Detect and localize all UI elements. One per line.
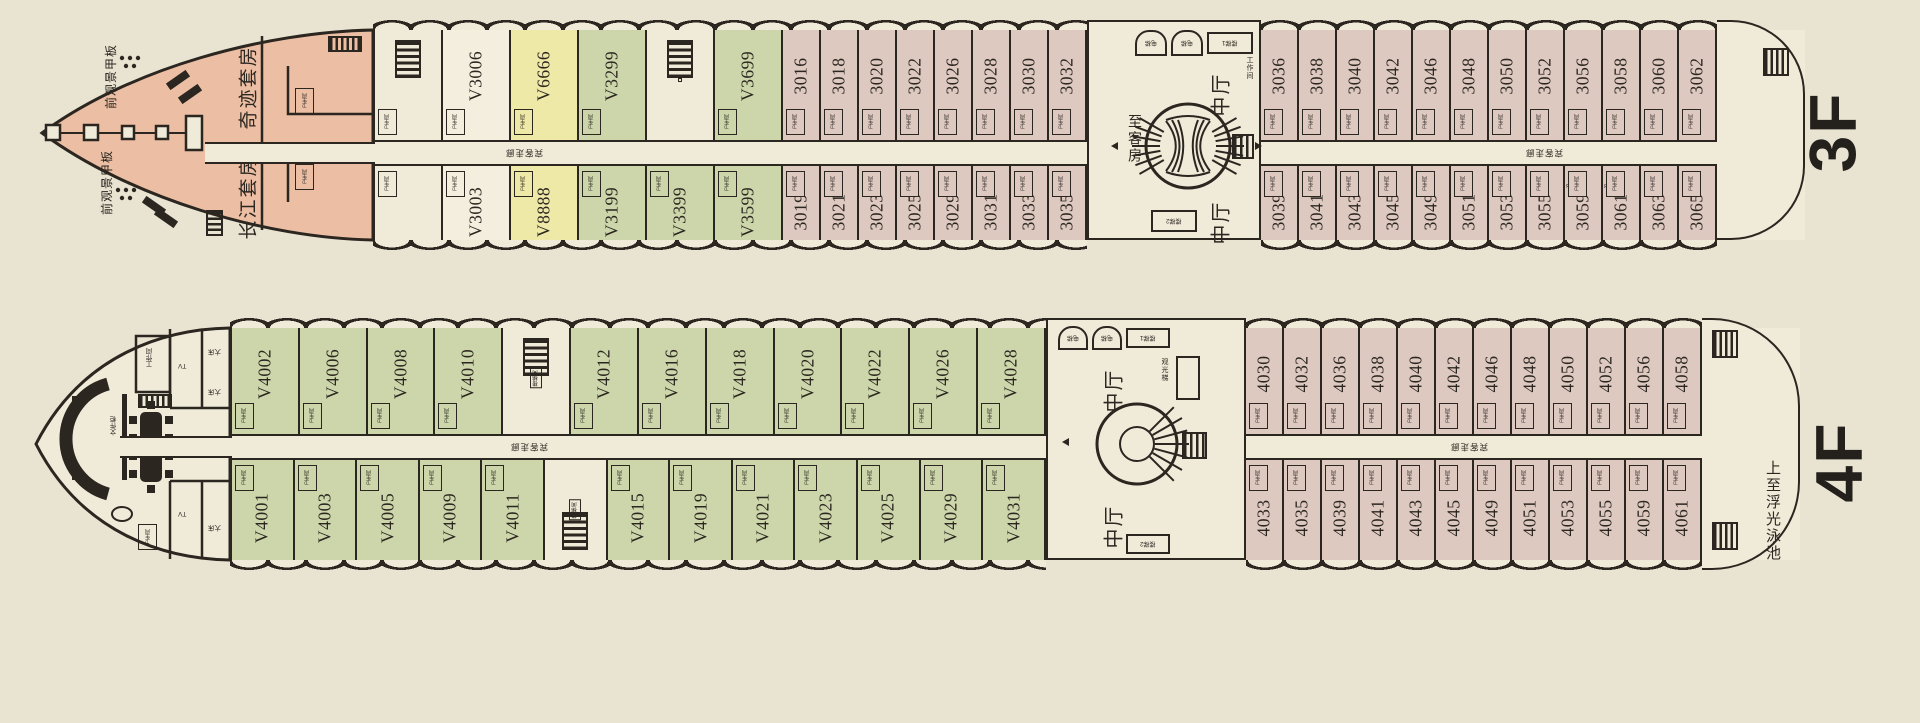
cabin-cell: V4022 卫生间 <box>842 328 910 434</box>
elevator: 电梯 <box>1092 326 1122 350</box>
cabin-number: V4001 <box>252 493 273 543</box>
cabin-cell: V8888 卫生间 <box>511 166 579 240</box>
cabin-cell: V6666 卫生间 <box>511 30 579 140</box>
cabin-cell: 3022 卫生间 <box>897 30 935 140</box>
corridor-label: 宾客走廊 <box>1525 147 1563 159</box>
bathroom-label: 卫生间 <box>303 403 322 429</box>
bathroom-label: 卫生间 <box>582 109 601 135</box>
cabin-number: 3030 <box>1019 58 1040 95</box>
bathroom-label: 卫生间 <box>574 403 593 429</box>
cabin-cell: 4033 卫生间 <box>1246 460 1284 560</box>
cabin-cell: 3063 卫生间 <box>1641 166 1679 240</box>
bathroom-label: 卫生间 <box>1302 109 1321 135</box>
bathroom-label: 卫生间 <box>1606 109 1625 135</box>
cabin-number: 4039 <box>1330 500 1351 537</box>
bathroom-label: 卫生间 <box>1014 171 1033 197</box>
corridor-label: 宾客走廊 <box>1450 441 1488 453</box>
bathroom-label: 卫生间 <box>986 465 1005 491</box>
bathroom-label: 卫生间 <box>1682 109 1701 135</box>
cabin-number: 3046 <box>1421 58 1442 95</box>
cabin-number: V4010 <box>458 349 479 399</box>
stairway-2-label: 楼梯2 <box>1140 540 1155 549</box>
cabin-number: 3061 <box>1611 194 1632 231</box>
cabin-cell: V4031 卫生间 <box>983 460 1046 560</box>
deck-3f-plan: 前观景甲板 前观景甲板 奇迹套房 长江套房 卫生间 卫生间 卫生间 V3006 … <box>30 6 1910 258</box>
cabin-cell: 3032 卫生间 <box>1049 30 1087 140</box>
cabin-number: 3048 <box>1459 58 1480 95</box>
stairs-icon <box>138 394 172 408</box>
cabin-cell: V4029 卫生间 <box>921 460 984 560</box>
cabin-number: 4040 <box>1406 356 1427 393</box>
cabin-cell: V4010 卫生间 <box>435 328 503 434</box>
bathroom-label: 卫生间 <box>862 109 881 135</box>
cabin-cell: 3045 卫生间 <box>1375 166 1413 240</box>
pool-access-label: 上至浮光泳池 <box>1762 460 1783 562</box>
cabin-number: 3026 <box>943 58 964 95</box>
cabin-number: V4022 <box>865 349 886 399</box>
cabin-number: 3040 <box>1345 58 1366 95</box>
cabin-number: 3021 <box>829 194 850 231</box>
stairway-2-label: 楼梯2 <box>1166 217 1181 226</box>
bathroom-label: 卫生间 <box>1492 171 1511 197</box>
cabin-cell: V4015 卫生间 <box>608 460 671 560</box>
cabin-number: 3045 <box>1383 194 1404 231</box>
cabin-cell: 4041 卫生间 <box>1360 460 1398 560</box>
lobby-label-bottom: 中厅 <box>1098 505 1127 549</box>
elevator: 电梯 <box>1171 30 1203 56</box>
bathroom-label: 卫生间 <box>582 171 601 197</box>
bathroom-label: 卫生间 <box>736 465 755 491</box>
cabin-cell: V4006 卫生间 <box>300 328 368 434</box>
corridor-arrow-icon <box>1111 142 1118 150</box>
cabin-number: 3063 <box>1649 194 1670 231</box>
balcony-edge <box>1261 20 1717 30</box>
stairway-2: 楼梯2 <box>1126 534 1170 554</box>
cabin-cell: 4051 卫生间 <box>1512 460 1550 560</box>
cabin-cell: 3039 卫生间 <box>1261 166 1299 240</box>
bathroom-label: 卫生间 <box>1568 171 1587 197</box>
bathroom-label: 卫生间 <box>938 171 957 197</box>
cabin-number: 4033 <box>1254 500 1275 537</box>
cabin-number: 3018 <box>829 58 850 95</box>
workroom-label: 工作间 <box>1245 56 1255 80</box>
cabin-number: V3299 <box>602 51 623 101</box>
cabin-cell: 卫生间 <box>647 30 715 140</box>
bathroom-label: 卫生间 <box>938 109 957 135</box>
bathroom-label: 卫生间 <box>1340 171 1359 197</box>
cabin-cell: 3050 卫生间 <box>1489 30 1527 140</box>
cabin-cell: 3035 卫生间 <box>1049 166 1087 240</box>
bathroom-label: 卫生间 <box>976 171 995 197</box>
cabin-number: 3060 <box>1649 58 1670 95</box>
cabin-cell: 4058 卫生间 <box>1664 328 1702 434</box>
cabin-cell: V4005 卫生间 <box>357 460 420 560</box>
deck3-bottom-right-cabins: 3039 卫生间 3041 卫生间 3043 卫生间 3045 卫生间 <box>1261 164 1717 240</box>
cabin-number: 3035 <box>1057 194 1078 231</box>
cabin-number: 3062 <box>1687 58 1708 95</box>
bathroom-label: 卫生间 <box>1454 171 1473 197</box>
bathroom-label: 卫生间 <box>642 403 661 429</box>
bathroom-label: 卫生间 <box>423 465 442 491</box>
cabin-cell: 3028 卫生间 <box>973 30 1011 140</box>
cabin-small-label: 楼梯间 <box>530 368 542 389</box>
cabin-cell: 3062 卫生间 <box>1679 30 1717 140</box>
cabin-number: V4021 <box>753 493 774 543</box>
elevator-label: 电梯 <box>1181 39 1193 48</box>
bathroom-label: 卫生间 <box>1378 109 1397 135</box>
corridor-label: 宾客走廊 <box>510 441 548 453</box>
bathroom-label: 卫生间 <box>824 109 843 135</box>
cabin-cell: 3026 卫生间 <box>935 30 973 140</box>
cabin-number: 3059 <box>1573 194 1594 231</box>
cabin-number: 4043 <box>1406 500 1427 537</box>
bathroom-label: 卫生间 <box>1378 171 1397 197</box>
bathroom-label: 卫生间 <box>1477 465 1496 491</box>
miracle-suite-label: 奇迹套房 <box>234 45 261 129</box>
bathroom-label: 卫生间 <box>378 171 397 197</box>
cabin-number: 4048 <box>1520 356 1541 393</box>
bathroom-label: 卫生间 <box>438 403 457 429</box>
stairs-icon <box>206 210 223 236</box>
bathroom-label: 卫生间 <box>514 171 533 197</box>
bathroom-label: 卫生间 <box>862 171 881 197</box>
bathroom-label: 卫生间 <box>1052 171 1071 197</box>
cabin-cell: 4040 卫生间 <box>1398 328 1436 434</box>
cabin-cell: 4053 卫生间 <box>1550 460 1588 560</box>
cabin-number: 4035 <box>1292 500 1313 537</box>
balcony-edge <box>1246 560 1702 570</box>
stairway-1-label: 楼梯1 <box>1222 39 1237 48</box>
bathroom-label: 卫生间 <box>1302 171 1321 197</box>
deck3-top-right-cabins: 3036 卫生间 3038 卫生间 3040 卫生间 3042 卫生间 3046… <box>1261 30 1717 142</box>
cabin-cell: 3058 卫生间 <box>1603 30 1641 140</box>
stair-steps-icon <box>1182 432 1207 459</box>
to-cabins-label: 至客房 <box>1123 114 1143 165</box>
lobby-label-top: 中厅 <box>1205 73 1234 117</box>
cabin-cell: 4050 卫生间 <box>1550 328 1588 434</box>
big-bed-label: 大床 <box>208 348 221 358</box>
sightseeing-elevator <box>1176 356 1200 400</box>
cabin-cell: 3052 卫生间 <box>1527 30 1565 140</box>
cabin-number: V3003 <box>466 187 487 237</box>
cabin-number: 3058 <box>1611 58 1632 95</box>
bathroom-label: 卫生间 <box>1629 403 1648 429</box>
cabin-cell: 3043 卫生间 <box>1337 166 1375 240</box>
bathroom-label: 卫生间 <box>1530 109 1549 135</box>
deck-4f-plan: TV 大床 大床 工作间 文件柜 TV 大床 卫生间 V4002 卫生间 V40… <box>20 296 1910 586</box>
bathroom-label: 卫生间 <box>1264 171 1283 197</box>
bathroom-label: 卫生间 <box>1629 465 1648 491</box>
deck3-bow-corridor <box>205 142 375 164</box>
cabin-cell: 3025 卫生间 <box>897 166 935 240</box>
bathroom-label: 卫生间 <box>798 465 817 491</box>
bathroom-label: 卫生间 <box>1644 171 1663 197</box>
cabin-cell: 3023 卫生间 <box>859 166 897 240</box>
bathroom-label: 卫生间 <box>295 164 314 190</box>
elevator-label: 电梯 <box>1101 334 1113 343</box>
cabin-cell: 3029 卫生间 <box>935 166 973 240</box>
cabin-number: V4031 <box>1003 493 1024 543</box>
cabin-number: V4018 <box>729 349 750 399</box>
cabin-cell: 3061 348 卫生间 <box>1603 166 1641 240</box>
bathroom-label: 卫生间 <box>138 524 157 550</box>
cabin-cell: 4043 卫生间 <box>1398 460 1436 560</box>
cabin-number: 4056 <box>1634 356 1655 393</box>
cabin-cell: V4016 卫生间 <box>639 328 707 434</box>
cabin-number: 3022 <box>905 58 926 95</box>
bathroom-label: 卫生间 <box>924 465 943 491</box>
cabin-number: 4045 <box>1444 500 1465 537</box>
cabin-number: 3028 <box>981 58 1002 95</box>
cabin-cell: 4045 卫生间 <box>1436 460 1474 560</box>
cabin-cell: 3030 卫生间 <box>1011 30 1049 140</box>
bathroom-label: 卫生间 <box>1287 403 1306 429</box>
balcony-edge <box>373 20 1087 30</box>
cabin-number: 4042 <box>1444 356 1465 393</box>
bathroom-label: 卫生间 <box>1568 109 1587 135</box>
cabin-cell: V4019 卫生间 <box>670 460 733 560</box>
bathroom-label: 卫生间 <box>1287 465 1306 491</box>
bathroom-label: 卫生间 <box>1515 403 1534 429</box>
cabin-cell: V4018 卫生间 <box>707 328 775 434</box>
bathroom-label: 卫生间 <box>786 171 805 197</box>
cabin-number: V6666 <box>534 51 555 101</box>
deck4-floor-label: 4F <box>1801 421 1877 502</box>
cabin-number: V3199 <box>602 187 623 237</box>
cabin-cell: 3031 卫生间 <box>973 166 1011 240</box>
balcony-edge <box>230 318 1046 328</box>
cabin-number: V4020 <box>797 349 818 399</box>
cabin-number: V4028 <box>1001 349 1022 399</box>
sightseeing-elevator-label: 观光梯 <box>1160 358 1170 382</box>
bathroom-label: 卫生间 <box>1401 403 1420 429</box>
bathroom-label: 卫生间 <box>1530 171 1549 197</box>
deck3-atrium: 电梯 电梯 楼梯1 楼梯2 至客房 工作间 中厅 中厅 <box>1087 20 1261 240</box>
bathroom-label: 卫生间 <box>1264 109 1283 135</box>
bathroom-label: 卫生间 <box>1515 465 1534 491</box>
deck4-atrium: 电梯 电梯 楼梯1 观光梯 中厅 中厅 楼梯2 <box>1046 318 1246 560</box>
cabin-cell: 4042 卫生间 <box>1436 328 1474 434</box>
stairway-1: 楼梯1 <box>1207 32 1253 54</box>
deck3-bottom-left-cabins: 3019 卫生间 3021 卫生间 3023 卫生间 3025 卫生间 3029… <box>783 164 1087 240</box>
bathroom-label: 卫生间 <box>1363 465 1382 491</box>
deck4-bottom-right-cabins: 4033 卫生间 4035 卫生间 4039 卫生间 4041 卫生间 4043… <box>1246 458 1702 560</box>
cabin-number: V4026 <box>933 349 954 399</box>
cabin-cell: 4052 卫生间 <box>1588 328 1626 434</box>
balcony-edge <box>1261 240 1717 250</box>
cabin-cell: 4036 卫生间 <box>1322 328 1360 434</box>
bathroom-label: 卫生间 <box>1249 403 1268 429</box>
stairway-2: 楼梯2 <box>1151 210 1197 232</box>
cabin-number: 3055 <box>1535 194 1556 231</box>
balcony-edge <box>1246 318 1702 328</box>
cabin-cell: V4001 卫生间 <box>232 460 295 560</box>
cabin-cell: V4011 卫生间 <box>482 460 545 560</box>
elevator: 电梯 <box>1135 30 1167 56</box>
bathroom-label: 卫生间 <box>1454 109 1473 135</box>
bathroom-label: 卫生间 <box>981 403 1000 429</box>
bathroom-label: 卫生间 <box>371 403 390 429</box>
cabin-cell: 4032 卫生间 <box>1284 328 1322 434</box>
bathroom-label: 卫生间 <box>235 403 254 429</box>
deck4-bow-corridor <box>120 436 232 458</box>
stairs-icon <box>1712 330 1738 358</box>
cruise-deck-plan: { "labels": { "wc": "卫生间", "corridor": "… <box>0 0 1920 723</box>
deck4-bottom-suites-row: V4001 卫生间 V4003 卫生间 V4005 卫生间 V4009 卫生间 <box>230 458 1046 560</box>
cabin-number: 3016 <box>791 58 812 95</box>
cabin-number: V4019 <box>690 493 711 543</box>
bathroom-label: 卫生间 <box>1606 171 1625 197</box>
cabin-number: 3051 <box>1459 194 1480 231</box>
bathroom-label: 卫生间 <box>913 403 932 429</box>
cabin-cell: 卫生间 <box>375 30 443 140</box>
bathroom-label: 卫生间 <box>1682 171 1701 197</box>
cabin-cell: V4021 卫生间 <box>733 460 796 560</box>
bathroom-label: 卫生间 <box>235 465 254 491</box>
stairs-icon <box>1712 522 1738 550</box>
cabin-cell: 4056 卫生间 <box>1626 328 1664 434</box>
cabin-cell: 3046 卫生间 <box>1413 30 1451 140</box>
cabin-cell: 3038 卫生间 <box>1299 30 1337 140</box>
cabin-number: 4055 <box>1596 500 1617 537</box>
cabin-number: 4050 <box>1558 356 1579 393</box>
elevator-label: 电梯 <box>1145 39 1157 48</box>
bathroom-label: 卫生间 <box>710 403 729 429</box>
bathroom-label: 卫生间 <box>718 109 737 135</box>
cabin-number: 3053 <box>1497 194 1518 231</box>
cabin-cell: V4003 卫生间 <box>295 460 358 560</box>
bathroom-label: 卫生间 <box>1644 109 1663 135</box>
cabin-number: 3019 <box>791 194 812 231</box>
cabin-cell: V4020 卫生间 <box>775 328 843 434</box>
cabin-small-label <box>678 78 682 82</box>
stairway-1-label: 楼梯1 <box>1140 334 1155 343</box>
cabin-number: 4032 <box>1292 356 1313 393</box>
bathroom-label: 卫生间 <box>1249 465 1268 491</box>
cabin-cell: 3060 卫生间 <box>1641 30 1679 140</box>
bathroom-label: 卫生间 <box>446 109 465 135</box>
bathroom-label: 卫生间 <box>1052 109 1071 135</box>
cabin-cell: 3019 卫生间 <box>783 166 821 240</box>
cabin-number: 3032 <box>1057 58 1078 95</box>
bathroom-label: 卫生间 <box>1416 171 1435 197</box>
bathroom-label: 卫生间 <box>900 109 919 135</box>
cabin-number: 3052 <box>1535 58 1556 95</box>
cabin-number: 3041 <box>1307 194 1328 231</box>
cabin-number: 3056 <box>1573 58 1594 95</box>
bathroom-label: 卫生间 <box>1014 109 1033 135</box>
bathroom-label: 卫生间 <box>1439 403 1458 429</box>
cabin-number: V4008 <box>390 349 411 399</box>
cabin-cell: 4038 卫生间 <box>1360 328 1398 434</box>
cabin-cell: 3040 卫生间 <box>1337 30 1375 140</box>
cabin-cell: 4030 卫生间 <box>1246 328 1284 434</box>
cabin-number: 3031 <box>981 194 1002 231</box>
cabin-cell: 4046 卫生间 <box>1474 328 1512 434</box>
cabin-number: V3399 <box>670 187 691 237</box>
cabin-cell: V3003 卫生间 <box>443 166 511 240</box>
cabin-number: V4023 <box>815 493 836 543</box>
cabin-number: V4005 <box>377 493 398 543</box>
bathroom-label: 卫生间 <box>1439 465 1458 491</box>
cabin-cell: V3199 卫生间 <box>579 166 647 240</box>
big-bed-label: 大床 <box>208 524 221 534</box>
bathroom-label: 卫生间 <box>673 465 692 491</box>
deck3-stern <box>1717 20 1805 240</box>
cabin-number: 4051 <box>1520 500 1541 537</box>
cabin-cell: 3042 卫生间 <box>1375 30 1413 140</box>
cabin-cell: 3055 卫生间 <box>1527 166 1565 240</box>
corridor-label: 宾客走廊 <box>505 147 543 159</box>
stairs-icon <box>1763 48 1789 76</box>
cabin-number: V4003 <box>314 493 335 543</box>
cabin-cell: 3016 卫生间 <box>783 30 821 140</box>
fwd-observation-deck-label-top: 前观景甲板 <box>102 44 119 109</box>
cabin-number: 3038 <box>1307 58 1328 95</box>
bathroom-label: 卫生间 <box>298 465 317 491</box>
corridor-arrow-icon <box>1062 438 1069 446</box>
cabin-number: V4006 <box>322 349 343 399</box>
cabin-cell: 4055 卫生间 <box>1588 460 1626 560</box>
stairs-icon <box>328 36 362 52</box>
cabin-cell: 3053 卫生间 <box>1489 166 1527 240</box>
cabin-cell: 3049 卫生间 <box>1413 166 1451 240</box>
cabin-cell: V4002 卫生间 <box>232 328 300 434</box>
cabin-number: 4036 <box>1330 356 1351 393</box>
bathroom-label: 卫生间 <box>1667 403 1686 429</box>
cabin-small-label: 楼梯间 <box>569 500 581 521</box>
cabin-number: V4016 <box>661 349 682 399</box>
balcony-edge <box>230 560 1046 570</box>
stair-steps-icon <box>1232 134 1254 159</box>
cabin-number: V8888 <box>534 187 555 237</box>
lobby-label-top: 中厅 <box>1098 369 1127 413</box>
bathroom-label: 卫生间 <box>900 171 919 197</box>
bathroom-label: 卫生间 <box>1340 109 1359 135</box>
cabin-number: V4009 <box>440 493 461 543</box>
cabin-number: 3033 <box>1019 194 1040 231</box>
corridor-arrow-icon <box>1255 142 1262 150</box>
tv-label: TV <box>178 362 186 369</box>
cabin-cell: 3036 卫生间 <box>1261 30 1299 140</box>
cabin-cell: V3599 卫生间 <box>715 166 783 240</box>
cabin-number: 4059 <box>1634 500 1655 537</box>
deck4-top-suites-row: V4002 卫生间 V4006 卫生间 V4008 卫生间 V4010 卫生间 <box>230 328 1046 436</box>
bathroom-label: 卫生间 <box>976 109 995 135</box>
bathroom-label: 卫生间 <box>861 465 880 491</box>
workroom-label: 工作间 <box>146 348 156 368</box>
cabin-number: 3023 <box>867 194 888 231</box>
elevator-label: 电梯 <box>1067 334 1079 343</box>
cabin-number: 3043 <box>1345 194 1366 231</box>
cabin-number: 4052 <box>1596 356 1617 393</box>
cabin-number: V4002 <box>254 349 275 399</box>
bathroom-label: 卫生间 <box>786 109 805 135</box>
bathroom-label: 卫生间 <box>1401 465 1420 491</box>
cabin-number: 4061 <box>1672 500 1693 537</box>
cabin-cell: V3399 卫生间 <box>647 166 715 240</box>
bathroom-label: 卫生间 <box>824 171 843 197</box>
cabin-cell: 4039 卫生间 <box>1322 460 1360 560</box>
bathroom-label: 卫生间 <box>514 109 533 135</box>
yangtze-suite-label: 长江套房 <box>234 155 261 239</box>
balcony-edge <box>373 240 1087 250</box>
cabin-number: V3006 <box>466 51 487 101</box>
cabin-number: 4049 <box>1482 500 1503 537</box>
cabin-number: 4041 <box>1368 500 1389 537</box>
stairway-1: 楼梯1 <box>1126 328 1170 348</box>
cabin-cell: 3059 346 卫生间 <box>1565 166 1603 240</box>
